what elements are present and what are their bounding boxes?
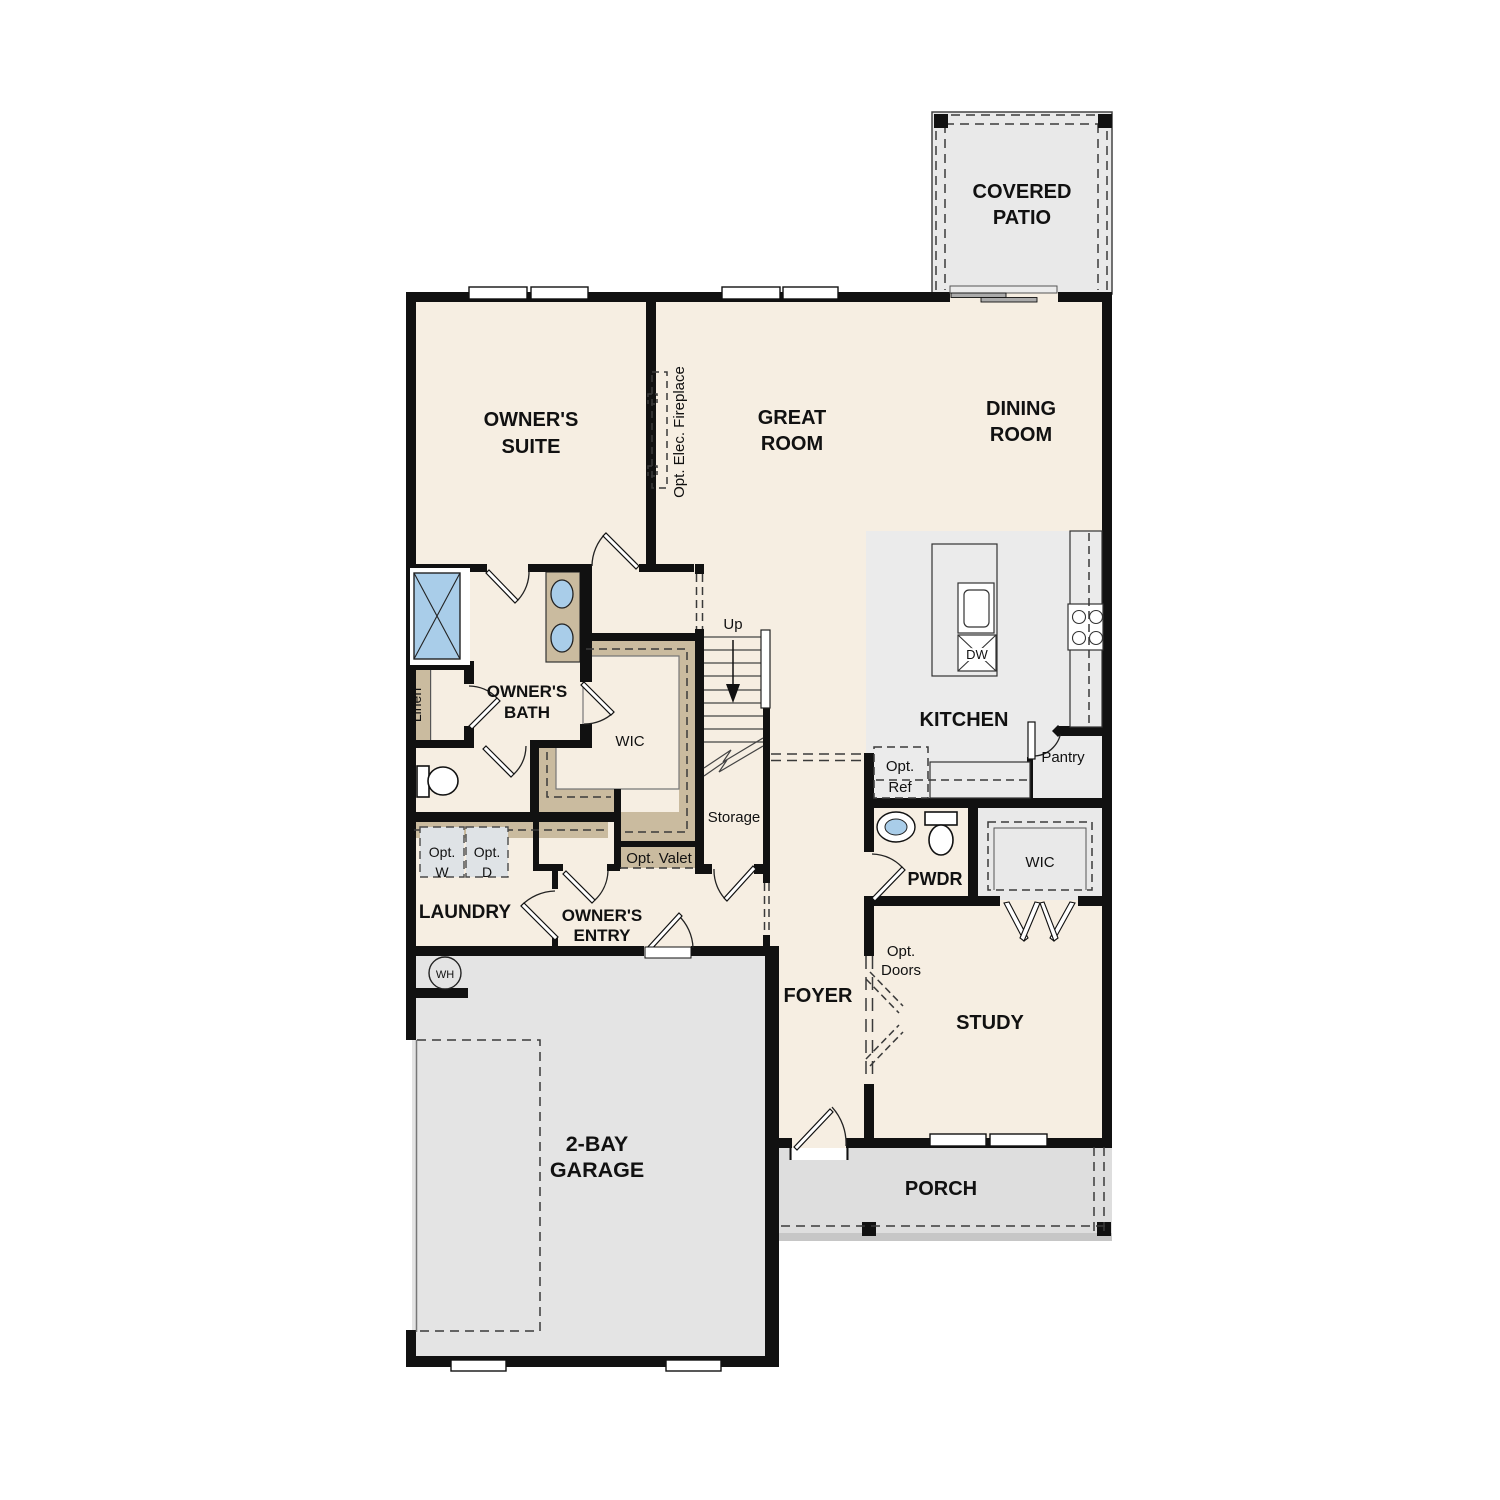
svg-text:PWDR: PWDR (908, 869, 963, 889)
svg-text:KITCHEN: KITCHEN (920, 709, 1009, 731)
svg-text:ENTRY: ENTRY (574, 926, 632, 945)
svg-text:PATIO: PATIO (993, 207, 1051, 229)
svg-text:COVERED: COVERED (973, 181, 1072, 203)
svg-text:Opt. Elec. Fireplace: Opt. Elec. Fireplace (671, 366, 688, 498)
svg-text:WIC: WIC (615, 733, 644, 750)
svg-text:Doors: Doors (881, 962, 921, 979)
svg-text:SUITE: SUITE (502, 436, 561, 458)
svg-text:WIC: WIC (1025, 854, 1054, 871)
svg-text:OWNER'S: OWNER'S (484, 409, 579, 431)
svg-text:WH: WH (436, 969, 454, 981)
svg-text:D: D (482, 864, 492, 880)
svg-text:DINING: DINING (986, 398, 1056, 420)
svg-text:DW: DW (966, 647, 988, 662)
svg-text:GARAGE: GARAGE (550, 1158, 644, 1182)
svg-text:Pantry: Pantry (1041, 749, 1085, 766)
svg-text:Opt. Valet: Opt. Valet (626, 850, 692, 867)
svg-text:GREAT: GREAT (758, 407, 827, 429)
svg-text:Up: Up (723, 616, 742, 633)
svg-text:OWNER'S: OWNER'S (562, 906, 643, 925)
svg-text:BATH: BATH (504, 703, 550, 722)
svg-text:Opt.: Opt. (429, 844, 455, 860)
svg-text:Ref: Ref (888, 779, 912, 796)
svg-text:Opt.: Opt. (887, 943, 915, 960)
svg-text:2-BAY: 2-BAY (566, 1132, 629, 1156)
svg-text:LAUNDRY: LAUNDRY (419, 902, 512, 923)
svg-text:Opt.: Opt. (474, 844, 500, 860)
svg-text:Opt.: Opt. (886, 758, 914, 775)
svg-text:STUDY: STUDY (956, 1012, 1024, 1034)
svg-text:ROOM: ROOM (990, 424, 1052, 446)
svg-text:W: W (435, 864, 449, 880)
svg-text:Linen: Linen (408, 688, 424, 722)
svg-text:OWNER'S: OWNER'S (487, 682, 568, 701)
svg-text:ROOM: ROOM (761, 433, 823, 455)
svg-text:FOYER: FOYER (784, 985, 853, 1007)
svg-text:Storage: Storage (708, 809, 761, 826)
svg-text:PORCH: PORCH (905, 1178, 977, 1200)
